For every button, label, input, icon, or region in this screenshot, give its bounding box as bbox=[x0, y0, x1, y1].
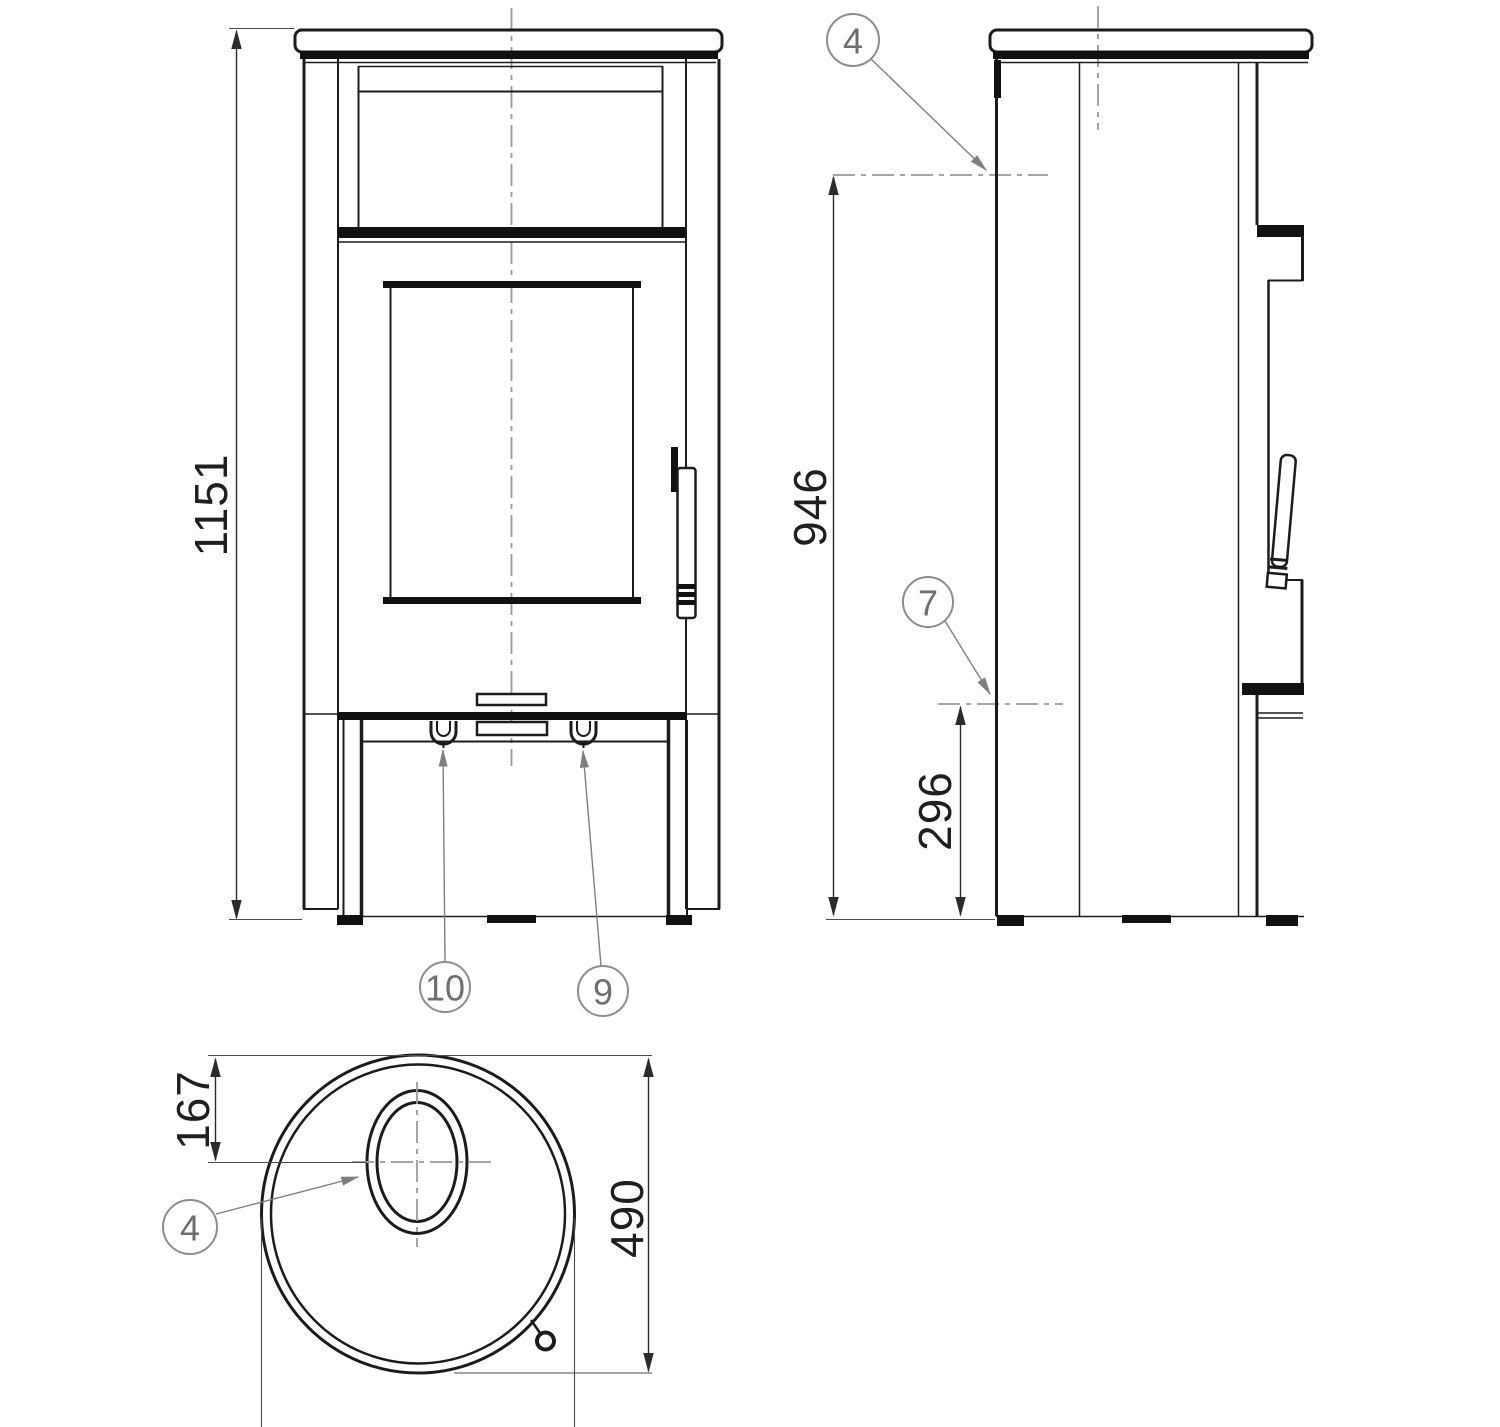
dimension-flue-offset: 167 bbox=[167, 1056, 652, 1163]
dimension-label-rear-flue-height: 946 bbox=[784, 467, 836, 547]
base-divider-band bbox=[338, 712, 687, 720]
callout-4-side: 4 bbox=[827, 14, 986, 170]
base-and-ash-drawer bbox=[337, 720, 692, 925]
dimension-rear-flue-height: 946 bbox=[784, 177, 995, 920]
dimension-rear-lower-height: 296 bbox=[909, 707, 961, 915]
side-door-handle bbox=[1267, 454, 1298, 588]
base-knob-right bbox=[571, 721, 596, 748]
technical-drawing-page: 1151 946 296 167 490 4 7 10 9 bbox=[0, 0, 1500, 1427]
callout-label-side-top-flue: 4 bbox=[843, 21, 863, 62]
dimension-label-overall-height: 1151 bbox=[185, 454, 237, 557]
dimension-label-flue-offset: 167 bbox=[167, 1070, 219, 1150]
front-foot-left bbox=[337, 915, 363, 925]
front-top-plate-band bbox=[300, 51, 718, 59]
front-view bbox=[295, 8, 722, 925]
top-view bbox=[262, 1055, 575, 1427]
base-knob-left bbox=[431, 721, 456, 748]
side-body bbox=[994, 59, 1257, 916]
callout-label-base-left: 10 bbox=[425, 968, 465, 1009]
side-base bbox=[996, 915, 1304, 926]
dimension-depth: 490 bbox=[454, 1059, 653, 1373]
top-view-body-inner bbox=[271, 1065, 565, 1364]
front-top-plate bbox=[295, 30, 722, 52]
air-control-slot-lower bbox=[477, 722, 547, 735]
dimension-label-depth: 490 bbox=[601, 1178, 653, 1258]
door-handle bbox=[671, 447, 696, 618]
callout-9-front: 9 bbox=[578, 751, 628, 1016]
callout-label-base-right: 9 bbox=[593, 972, 613, 1013]
callout-label-rear-connection: 7 bbox=[918, 583, 938, 624]
front-foot-right bbox=[666, 915, 692, 925]
side-view bbox=[833, 6, 1312, 926]
callout-label-top-view-flue: 4 bbox=[180, 1208, 200, 1249]
side-foot-front bbox=[1266, 915, 1298, 926]
side-top-plate-band bbox=[993, 51, 1309, 59]
side-foot-center bbox=[1122, 915, 1171, 923]
callout-7-side: 7 bbox=[903, 577, 990, 694]
front-foot-center bbox=[487, 915, 536, 923]
air-control-slot-upper bbox=[477, 694, 546, 705]
dimension-overall-height: 1151 bbox=[185, 29, 302, 920]
callout-10-front: 10 bbox=[420, 750, 470, 1012]
dimension-label-rear-lower-height: 296 bbox=[909, 771, 961, 851]
side-foot-rear bbox=[997, 915, 1024, 926]
warming-compartment-sill bbox=[338, 227, 685, 238]
top-view-latch-handle bbox=[531, 1320, 554, 1350]
side-top-plate bbox=[990, 30, 1312, 52]
stove-dimension-drawing: 1151 946 296 167 490 4 7 10 9 bbox=[0, 0, 1500, 1427]
